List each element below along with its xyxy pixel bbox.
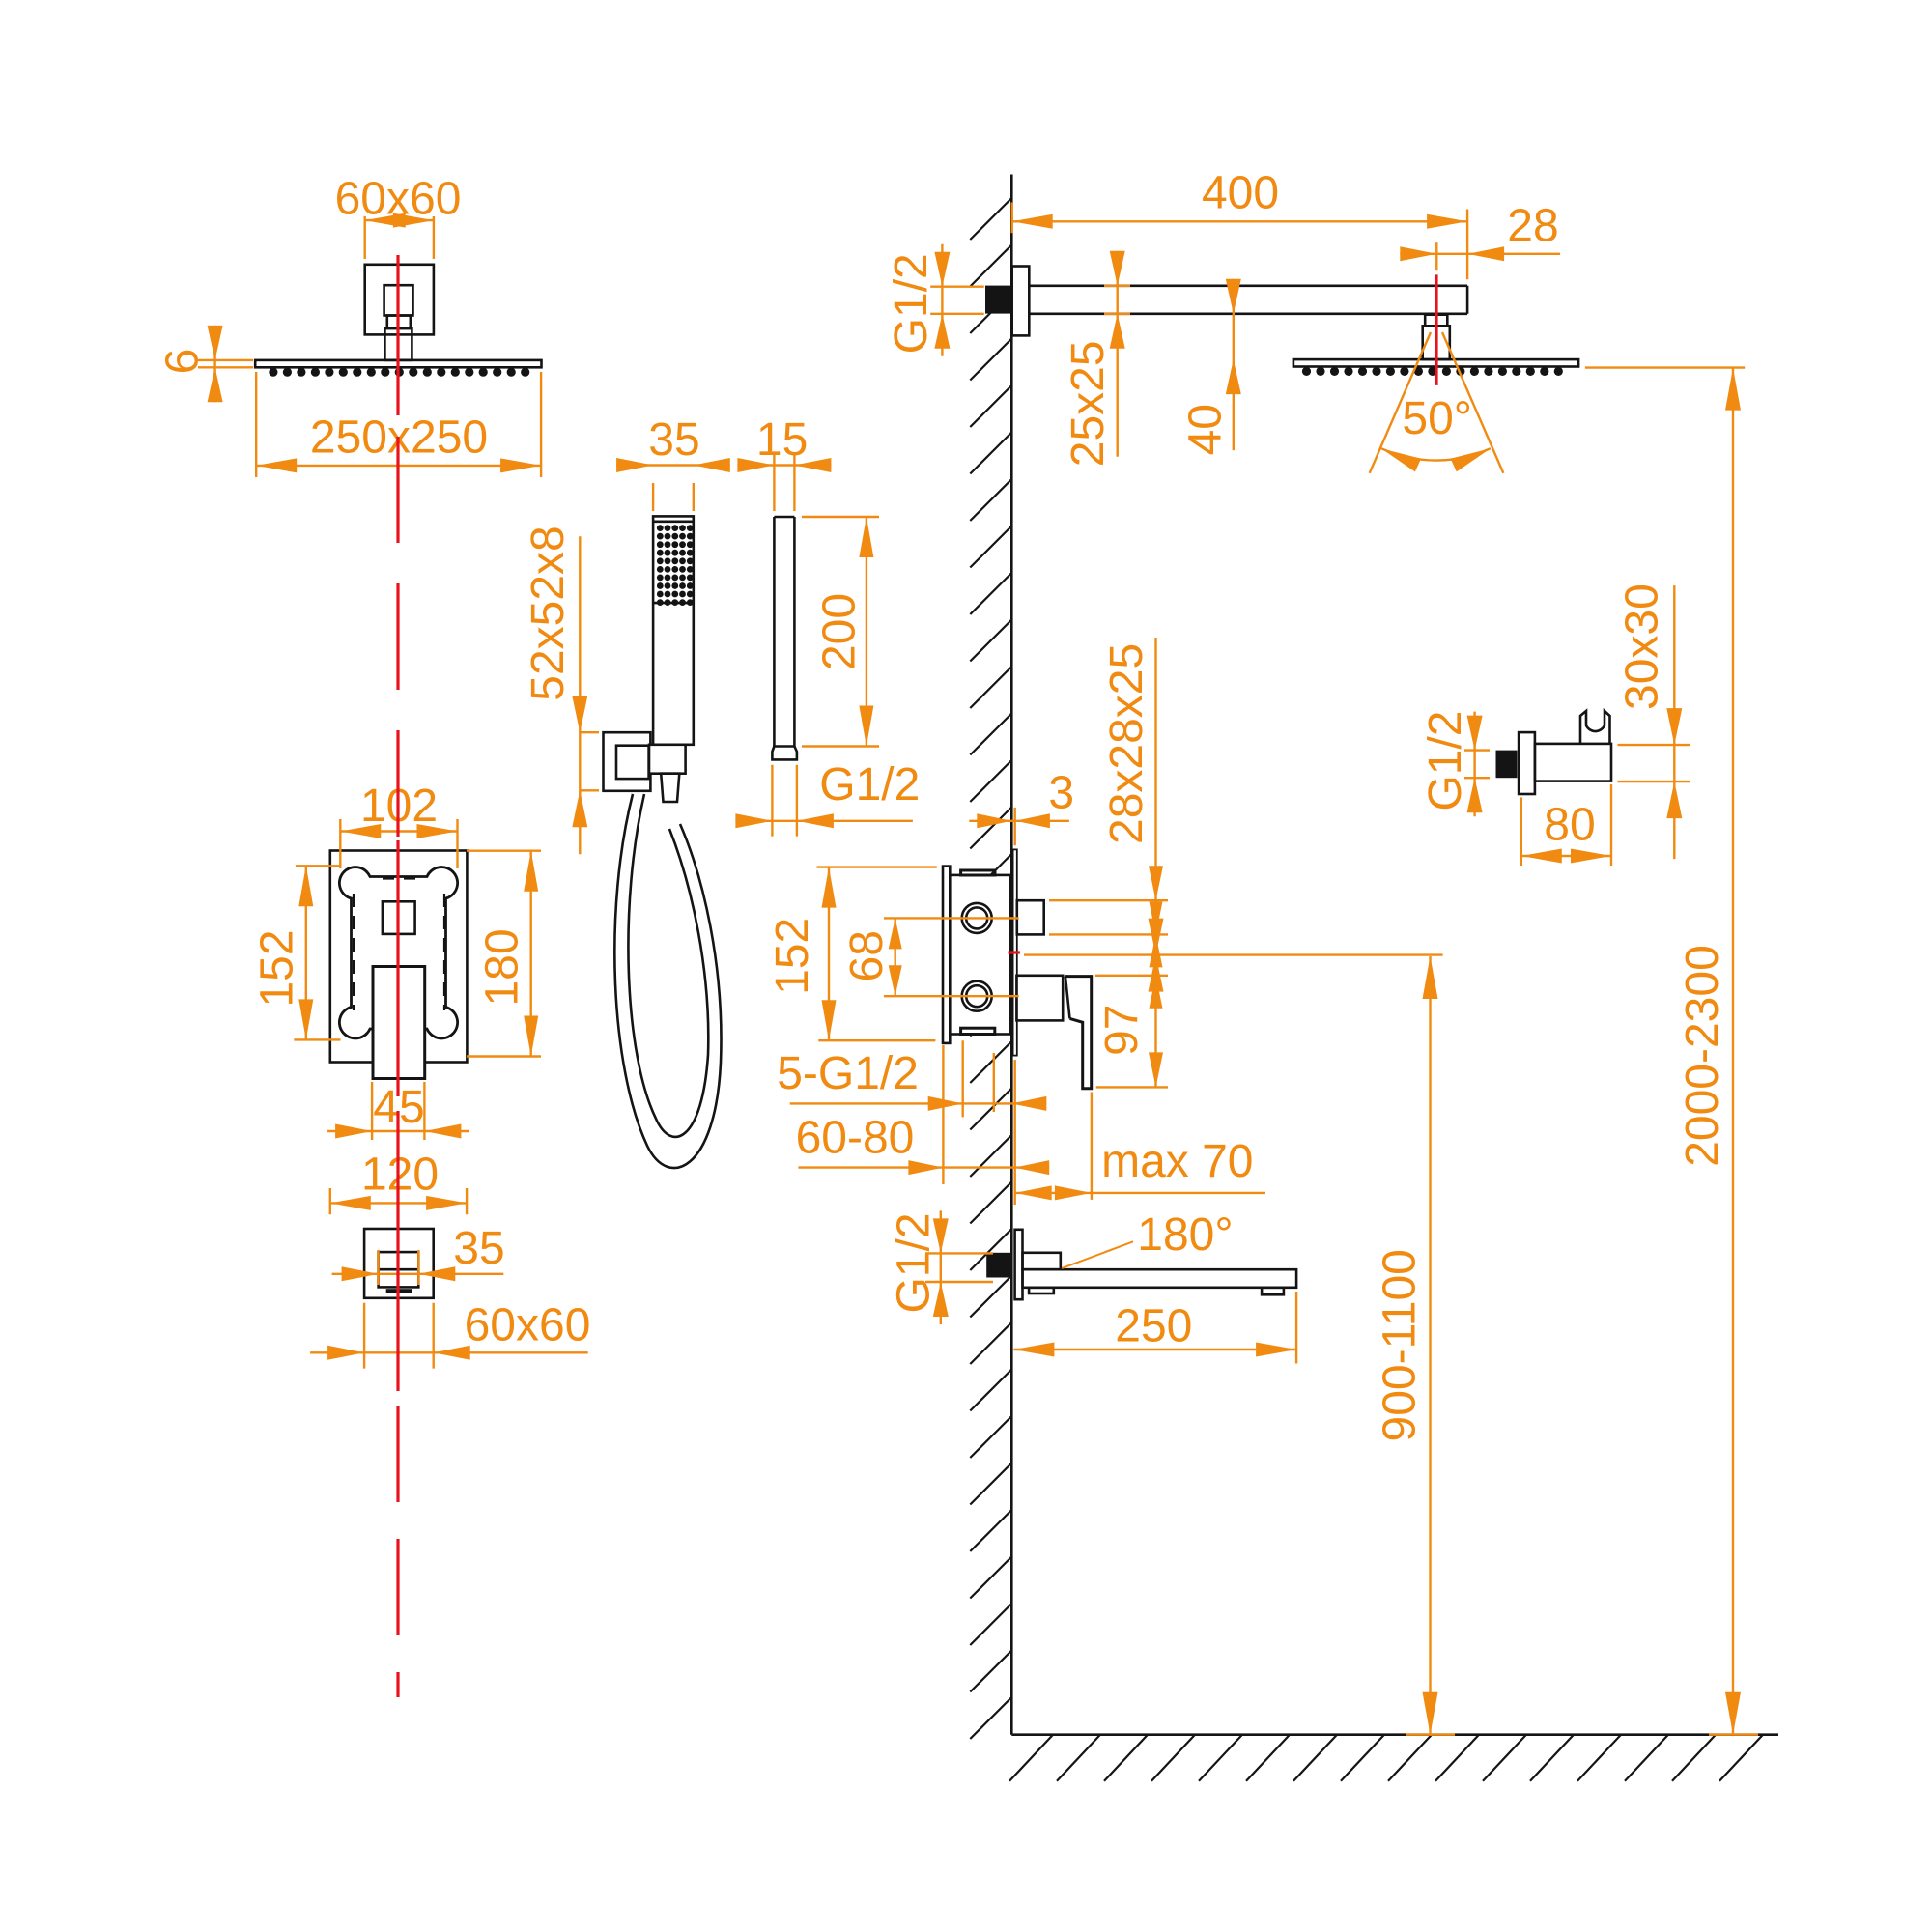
svg-text:52x52x8: 52x52x8: [523, 526, 574, 700]
svg-text:40: 40: [1179, 404, 1231, 455]
svg-text:900-1100: 900-1100: [1375, 1249, 1426, 1441]
svg-text:G1/2: G1/2: [886, 253, 937, 354]
svg-text:60x60: 60x60: [335, 173, 462, 224]
svg-text:25x25: 25x25: [1063, 340, 1114, 467]
svg-text:max 70: max 70: [1101, 1136, 1253, 1187]
svg-text:30x30: 30x30: [1617, 583, 1668, 710]
svg-text:180: 180: [477, 928, 528, 1006]
svg-text:60x60: 60x60: [465, 1300, 591, 1351]
svg-text:80: 80: [1544, 800, 1595, 851]
svg-text:15: 15: [756, 414, 808, 466]
svg-text:180°: 180°: [1137, 1209, 1233, 1261]
svg-text:400: 400: [1202, 168, 1279, 219]
svg-text:G1/2: G1/2: [1420, 711, 1471, 811]
svg-text:6: 6: [157, 349, 209, 375]
svg-text:28x28x25: 28x28x25: [1101, 643, 1152, 844]
svg-text:152: 152: [252, 929, 303, 1007]
svg-text:120: 120: [361, 1149, 439, 1200]
svg-text:60-80: 60-80: [796, 1113, 915, 1164]
svg-text:5-G1/2: 5-G1/2: [777, 1048, 919, 1099]
svg-text:G1/2: G1/2: [889, 1212, 940, 1313]
svg-text:97: 97: [1096, 1005, 1148, 1056]
svg-text:35: 35: [648, 414, 699, 466]
svg-text:152: 152: [767, 918, 818, 995]
svg-text:2000-2300: 2000-2300: [1677, 945, 1728, 1167]
svg-text:68: 68: [841, 930, 893, 981]
svg-text:200: 200: [814, 593, 866, 670]
svg-text:35: 35: [453, 1223, 504, 1274]
svg-text:3: 3: [1048, 767, 1074, 818]
svg-text:28: 28: [1507, 201, 1558, 252]
svg-text:50°: 50°: [1402, 393, 1472, 444]
svg-text:250: 250: [1115, 1300, 1192, 1351]
svg-text:G1/2: G1/2: [819, 759, 920, 810]
